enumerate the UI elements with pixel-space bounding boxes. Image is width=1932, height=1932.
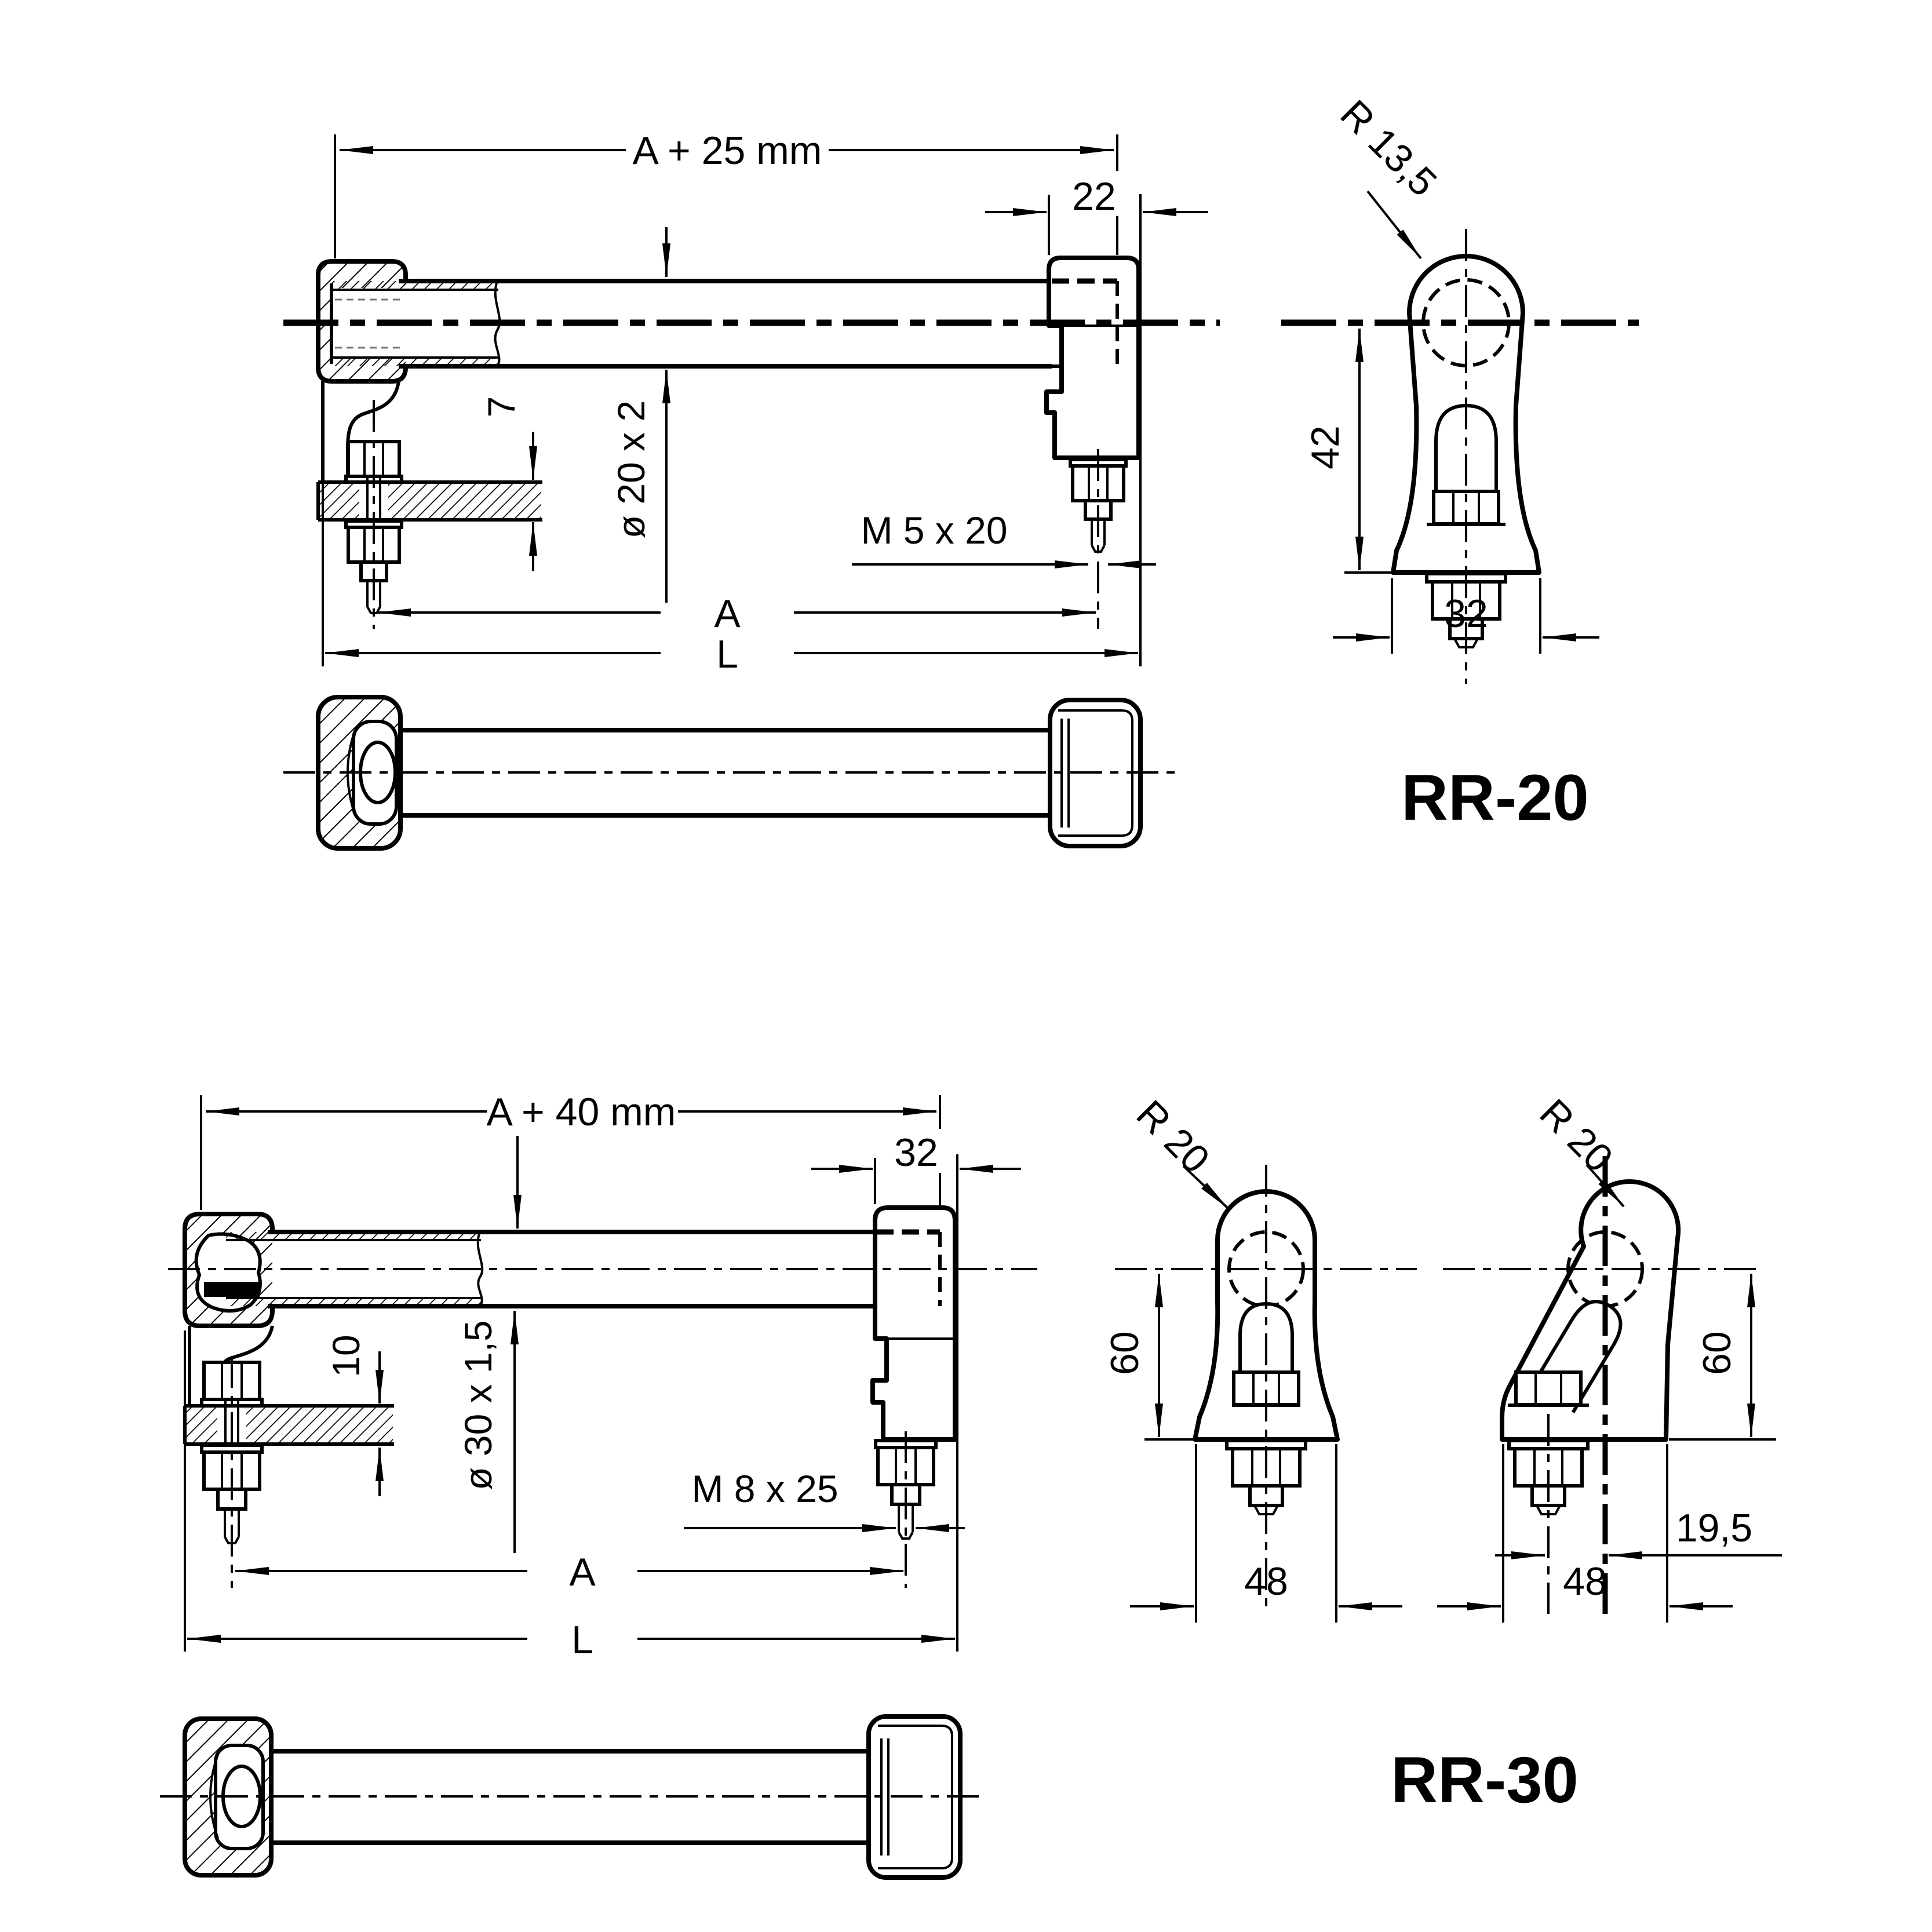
rr20-dim-foot-width: 22: [1072, 174, 1116, 218]
rr30-dim-radius2: R 20: [1532, 1091, 1621, 1180]
rr30-dim-overall: A + 40 mm: [487, 1090, 676, 1134]
rr30-dim-L: L: [571, 1618, 593, 1662]
rr30-dim-radius1: R 20: [1128, 1092, 1218, 1182]
rr20-label: RR-20: [1401, 761, 1589, 834]
rr30-dim-foot-width: 32: [894, 1131, 938, 1175]
rr20-dim-tube: ø 20 x 2: [610, 400, 652, 538]
handles-drawing-svg: A + 25 mm 22 ø 20 x 2 7 M 5 x 20 A L: [0, 0, 1932, 1932]
rr30-dim-A: A: [569, 1550, 596, 1594]
rr20-right-foot: [1047, 258, 1139, 552]
rr30-dim-screw: M 8 x 25: [691, 1467, 838, 1510]
rr30-dim-depth2: 48: [1563, 1559, 1607, 1603]
rr20-end-view: R 13,5 42 32: [1281, 92, 1639, 684]
rr30-dim-panel: 10: [325, 1335, 367, 1377]
rr30-right-foot: [873, 1208, 955, 1539]
rr20-dim-radius: R 13,5: [1332, 92, 1445, 205]
rr20-dim-panel: 7: [480, 396, 523, 418]
rr30-end-view-tilted: R 20 60 19,5 48: [1437, 1091, 1782, 1623]
rr20-dim-A: A: [714, 592, 741, 636]
rr30-dim-height1: 60: [1103, 1331, 1147, 1375]
technical-drawing-page: A + 25 mm 22 ø 20 x 2 7 M 5 x 20 A L: [0, 0, 1932, 1932]
rr30-cap-key-slot: [204, 1282, 260, 1297]
rr20-bottom-view: [283, 697, 1183, 848]
rr20-dim-screw: M 5 x 20: [861, 509, 1007, 552]
rr20-dim-overall: A + 25 mm: [633, 129, 822, 173]
rr30-dim-tube: ø 30 x 1,5: [457, 1320, 500, 1490]
rr30-dim-offset: 19,5: [1676, 1506, 1752, 1550]
rr20-side-view: A + 25 mm 22 ø 20 x 2 7 M 5 x 20 A L: [283, 129, 1220, 676]
rr20-dim-height: 42: [1303, 425, 1347, 469]
rr30-side-view: A + 40 mm 32 ø 30 x 1,5 10 M 8 x 25 A L: [168, 1090, 1037, 1662]
rr30-label: RR-30: [1391, 1744, 1579, 1816]
rr30-end-view-straight: R 20 60 48: [1103, 1092, 1417, 1623]
rr30-dim-depth1: 48: [1244, 1559, 1288, 1603]
rr20-dim-foot-depth: 32: [1444, 592, 1488, 636]
rr30-bottom-view: [160, 1716, 986, 1878]
rr20-dim-L: L: [716, 632, 738, 676]
rr30-dim-height2: 60: [1695, 1331, 1739, 1375]
